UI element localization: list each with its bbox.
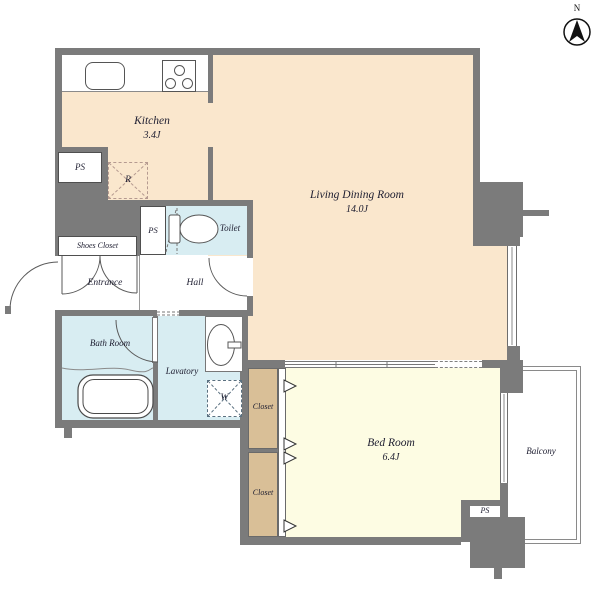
wall-hall-bottom-west bbox=[55, 310, 157, 316]
bathroom-floor bbox=[62, 316, 153, 420]
bathroom-label: Bath Room bbox=[70, 338, 150, 350]
ps-toilet-box: PS bbox=[140, 206, 166, 255]
refrigerator-label: R bbox=[108, 174, 148, 186]
washbasin-counter bbox=[205, 316, 243, 372]
living-dining-floor-east bbox=[473, 243, 507, 360]
wall-bath-bottom bbox=[55, 420, 248, 428]
lavatory-sliding-door bbox=[157, 312, 179, 315]
living-window bbox=[507, 246, 517, 346]
kitchen-sink bbox=[85, 62, 125, 90]
ps-bedroom-box: PS bbox=[470, 506, 500, 517]
wall-pillar-east bbox=[473, 182, 523, 237]
wall-kitchen-divider-bottom bbox=[208, 147, 213, 205]
ps-bedroom-label: PS bbox=[481, 506, 490, 516]
bedroom-window bbox=[500, 393, 508, 483]
compass-north-label: N bbox=[569, 3, 585, 15]
wall-closet-divider bbox=[248, 449, 278, 452]
kitchen-size: 3.4J bbox=[102, 129, 202, 142]
ps-kitchen-box: PS bbox=[58, 152, 102, 183]
pillar-southeast bbox=[470, 517, 525, 568]
wall-tick-southwest bbox=[64, 428, 72, 438]
balcony-label: Balcony bbox=[501, 446, 581, 458]
stove-burner-icon bbox=[174, 65, 185, 76]
washing-machine-label: W bbox=[207, 392, 242, 404]
wall-ps-bedroom-left bbox=[461, 500, 470, 542]
stove-burner-icon bbox=[165, 78, 176, 89]
stove-burner-icon bbox=[182, 78, 193, 89]
closet-lower-label: Closet bbox=[247, 488, 279, 498]
living-bedroom-sliding-door bbox=[285, 361, 435, 368]
kitchen-label: Kitchen 3.4J bbox=[102, 114, 202, 142]
front-door-swing bbox=[5, 262, 58, 314]
shoes-closet-label: Shoes Closet bbox=[77, 241, 118, 251]
ps-kitchen-label: PS bbox=[75, 162, 85, 174]
toilet-label: Toilet bbox=[200, 223, 260, 235]
wall-kitchen-divider-top bbox=[208, 48, 213, 103]
floor-plan: PS PS Shoes Closet PS bbox=[0, 0, 600, 600]
wall-tick-east bbox=[523, 210, 549, 216]
living-dining-name: Living Dining Room bbox=[277, 188, 437, 203]
bath-door-leaf bbox=[152, 317, 158, 363]
living-bedroom-open-partition bbox=[435, 361, 482, 368]
wall-left-lower bbox=[55, 310, 62, 428]
wall-below-pillar bbox=[473, 237, 520, 246]
kitchen-name: Kitchen bbox=[102, 114, 202, 129]
lavatory-label: Lavatory bbox=[142, 366, 222, 378]
wall-living-bedroom-west bbox=[248, 360, 285, 368]
entrance-label: Entrance bbox=[70, 277, 140, 289]
bedroom-name: Bed Room bbox=[331, 436, 451, 451]
compass-icon bbox=[564, 19, 590, 45]
ps-toilet-label: PS bbox=[148, 225, 157, 236]
closet-door-strip bbox=[278, 368, 286, 537]
wall-bedroom-right-top bbox=[500, 360, 523, 393]
closet-upper-label: Closet bbox=[247, 402, 279, 412]
bedroom-label: Bed Room 6.4J bbox=[331, 436, 451, 464]
bedroom-size: 6.4J bbox=[331, 451, 451, 464]
wall-bedroom-bottom bbox=[240, 537, 461, 545]
living-dining-size: 14.0J bbox=[277, 203, 437, 216]
wall-right-upper bbox=[473, 48, 480, 184]
wall-top bbox=[55, 48, 480, 55]
living-dining-label: Living Dining Room 14.0J bbox=[277, 188, 437, 216]
stove bbox=[162, 60, 196, 92]
shoes-closet-box: Shoes Closet bbox=[58, 236, 137, 256]
wall-tick-pillar-bottom bbox=[494, 568, 502, 579]
hall-label: Hall bbox=[165, 277, 225, 289]
hall-living-door-opening bbox=[247, 258, 253, 296]
